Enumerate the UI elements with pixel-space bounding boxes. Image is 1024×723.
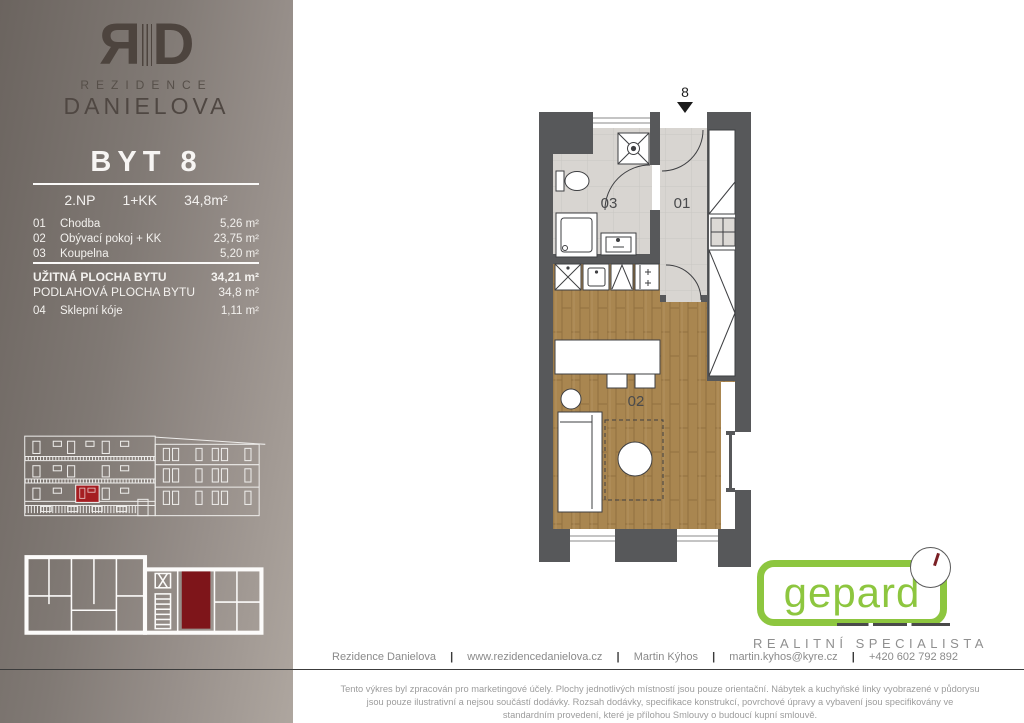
- brand-logo: R D REZIDENCE DANIELOVA: [0, 14, 293, 120]
- agency-tagline: REALITNÍ SPECIALISTA: [753, 636, 958, 651]
- brand-name-line1: REZIDENCE: [0, 78, 293, 92]
- floor-key-plan-diagram: [22, 551, 268, 646]
- room-number: 03: [33, 247, 60, 262]
- needle-icon: [933, 553, 940, 566]
- unit-floor: 2.NP: [64, 192, 95, 208]
- unit-meta: 2.NP 1+KK 34,8m²: [33, 192, 259, 208]
- cellar-row: 04 Sklepní kóje 1,11 m²: [33, 304, 259, 319]
- bathroom-label: 03: [601, 195, 618, 212]
- divider-totals: [33, 262, 259, 264]
- usable-area-row: UŽITNÁ PLOCHA BYTU 34,21 m²: [33, 270, 259, 285]
- floor-area-label: PODLAHOVÁ PLOCHA BYTU: [33, 285, 218, 300]
- room-row-koupelna: 03 Koupelna 5,20 m²: [33, 247, 259, 262]
- divider-top: [33, 183, 259, 185]
- cellar-area: 1,11 m²: [221, 304, 259, 319]
- footer-separator: |: [450, 651, 453, 663]
- unit-area: 34,8m²: [184, 192, 228, 208]
- usable-area-value: 34,21 m²: [211, 270, 259, 285]
- room-name: Koupelna: [60, 247, 220, 262]
- apartment-floor-plan: 8 03 01 02: [535, 82, 765, 572]
- room-number: 02: [33, 232, 60, 247]
- footer-contact-row: Rezidence Danielova | www.rezidencedanie…: [332, 651, 958, 663]
- building-elevation-diagram: [22, 428, 268, 534]
- unit-disposition: 1+KK: [122, 192, 157, 208]
- room-name: Chodba: [60, 217, 220, 232]
- cellar-name: Sklepní kóje: [60, 304, 221, 319]
- brand-monogram-icon: R D: [0, 14, 293, 76]
- entrance-number: 8: [681, 84, 689, 100]
- room-area: 23,75 m²: [214, 232, 259, 247]
- monogram-letter-d: D: [153, 15, 195, 75]
- agency-name: gepard: [784, 569, 921, 617]
- highlighted-unit-elevation: [76, 485, 99, 502]
- footer-agent-name: Martin Kýhos: [634, 651, 698, 663]
- hallway-floor: [660, 128, 707, 302]
- highlighted-unit-keyplan: [182, 571, 211, 628]
- legal-disclaimer: Tento výkres byl zpracován pro marketing…: [340, 683, 980, 722]
- hallway-label: 01: [674, 195, 691, 212]
- footer-divider: [0, 669, 1024, 670]
- living-room-label: 02: [628, 393, 645, 410]
- footer-separator: |: [852, 651, 855, 663]
- monogram-bars-icon: [142, 24, 152, 66]
- footer-separator: |: [712, 651, 715, 663]
- ruler-line: [837, 623, 950, 626]
- sidebar-panel: R D REZIDENCE DANIELOVA BYT 8 2.NP 1+KK …: [0, 0, 293, 723]
- room-row-chodba: 01 Chodba 5,26 m²: [33, 217, 259, 232]
- flyer-page: { "brand": { "monogram_r": "R", "monogra…: [0, 0, 1024, 723]
- brand-name-line2: DANIELOVA: [0, 93, 293, 120]
- room-area: 5,20 m²: [220, 247, 259, 262]
- monogram-letter-r: R: [99, 15, 141, 75]
- footer-separator: |: [617, 651, 620, 663]
- entrance-arrow-icon: [677, 102, 693, 113]
- footer-email-link[interactable]: martin.kyhos@kyre.cz: [729, 651, 837, 663]
- room-list: 01 Chodba 5,26 m² 02 Obývací pokoj + KK …: [33, 217, 259, 262]
- usable-area-label: UŽITNÁ PLOCHA BYTU: [33, 270, 211, 285]
- cellar-number: 04: [33, 304, 60, 319]
- room-number: 01: [33, 217, 60, 232]
- room-row-obyvaci: 02 Obývací pokoj + KK 23,75 m²: [33, 232, 259, 247]
- totals-block: UŽITNÁ PLOCHA BYTU 34,21 m² PODLAHOVÁ PL…: [33, 270, 259, 300]
- floor-area-value: 34,8 m²: [218, 285, 259, 300]
- footer-website-link[interactable]: www.rezidencedanielova.cz: [467, 651, 602, 663]
- footer-project-name: Rezidence Danielova: [332, 651, 436, 663]
- unit-title: BYT 8: [0, 146, 293, 179]
- floor-area-row: PODLAHOVÁ PLOCHA BYTU 34,8 m²: [33, 285, 259, 300]
- footer-phone: +420 602 792 892: [869, 651, 958, 663]
- room-name: Obývací pokoj + KK: [60, 232, 214, 247]
- room-area: 5,26 m²: [220, 217, 259, 232]
- agency-logo: gepard REALITNÍ SPECIALISTA: [753, 550, 958, 655]
- speedometer-icon: [910, 547, 951, 588]
